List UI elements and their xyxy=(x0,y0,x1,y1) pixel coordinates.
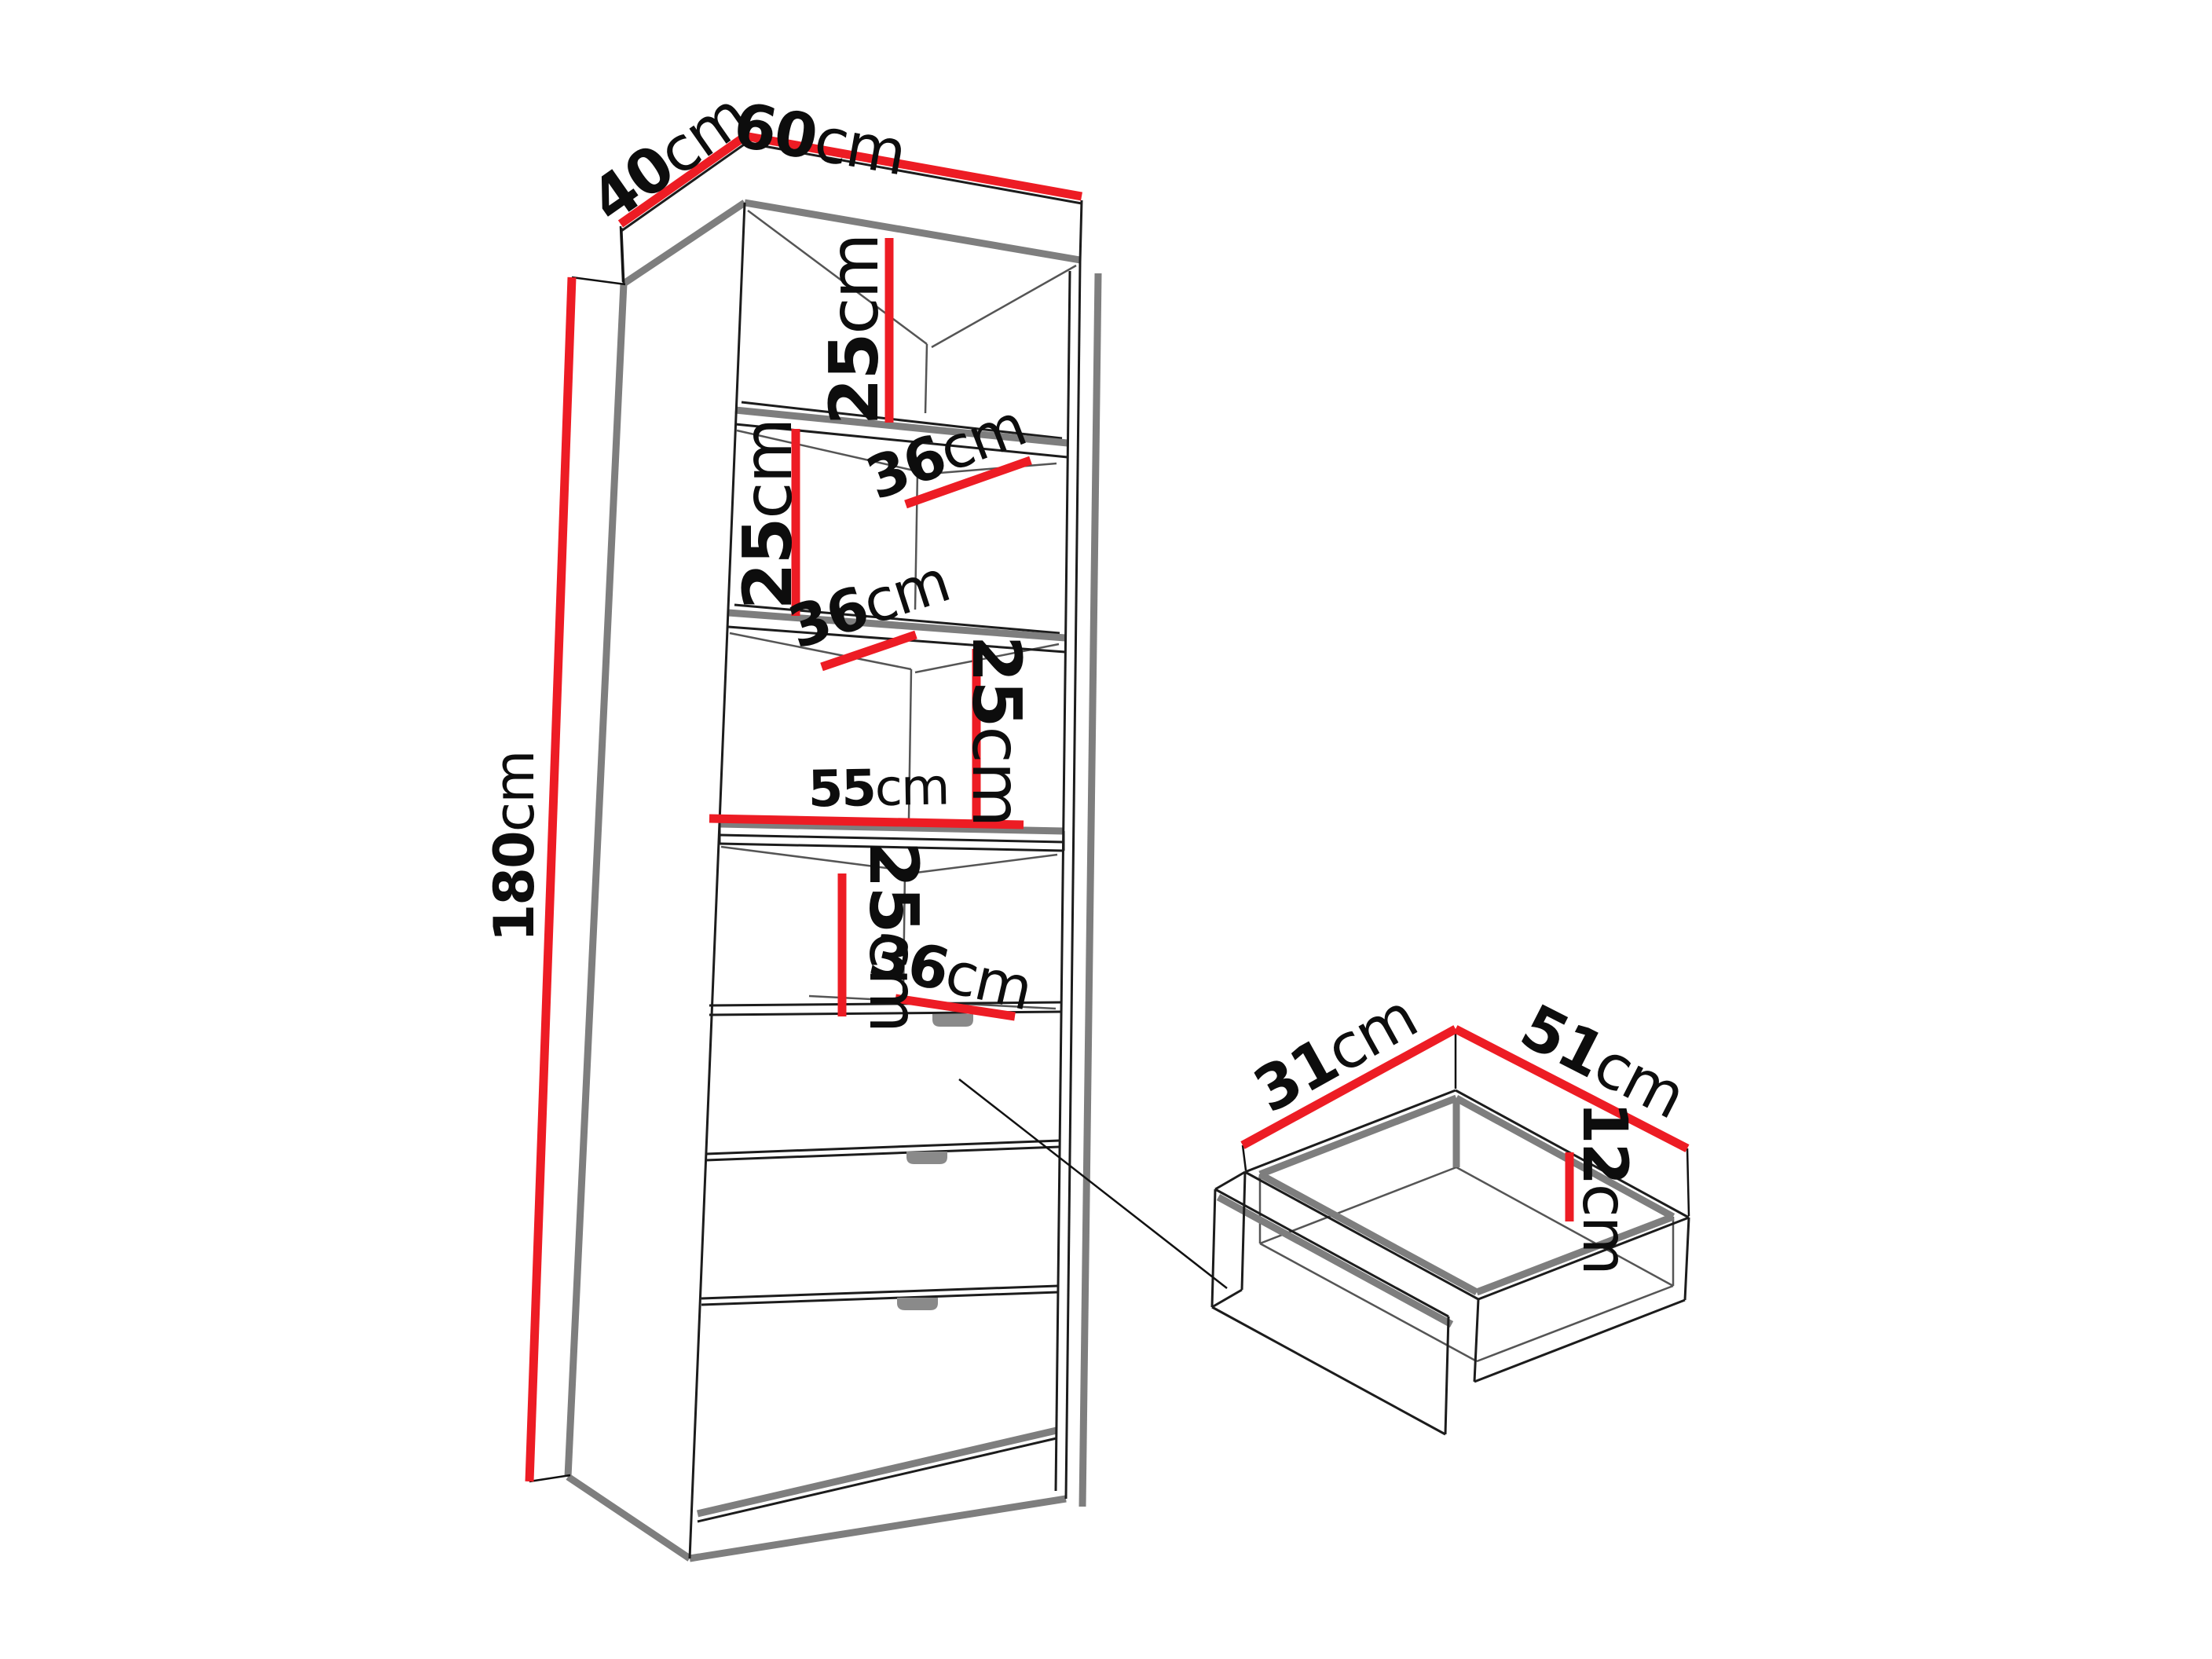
dim-label-drawer-height-12: 12cm xyxy=(1569,1101,1639,1273)
dim-label-compartment3-25: 25cm xyxy=(957,635,1035,826)
background xyxy=(0,0,2212,1659)
drawer3-handle xyxy=(897,1298,938,1310)
dim-label-interior-55: 55cm xyxy=(808,758,949,819)
drawer1-handle xyxy=(932,1014,973,1027)
top-right-corner-edge xyxy=(1080,200,1082,262)
dim-label-height-180: 180cm xyxy=(482,752,547,943)
dim-label-compartment1-25: 25cm xyxy=(815,235,894,426)
furniture-dimension-diagram: 40cm 60cm 180cm 25cm 36cm 25cm 36cm 25cm… xyxy=(0,0,2212,1659)
drawer-front-panel-left-cap xyxy=(1212,1172,1245,1307)
dim-label-compartment2-25: 25cm xyxy=(729,419,808,610)
drawer2-handle xyxy=(906,1152,947,1164)
